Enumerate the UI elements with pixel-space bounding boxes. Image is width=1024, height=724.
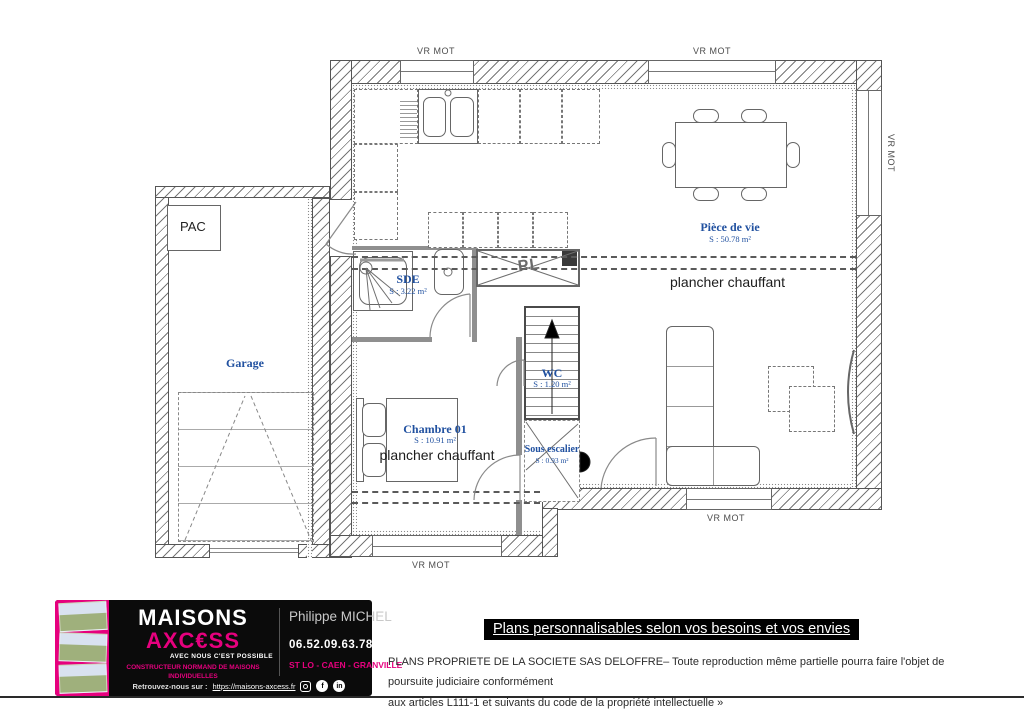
room-area-bedroom: S : 10.91 m²: [380, 435, 490, 445]
pac-label: PAC: [180, 219, 206, 234]
social-prefix: Retrouvez-nous sur :: [133, 682, 208, 691]
partition-bedroom-right-lower: [516, 500, 522, 535]
chair: [662, 142, 676, 168]
room-area-understairs: S : 0.93 m²: [516, 456, 588, 465]
photo-strip: [55, 600, 109, 696]
shutter-label-kitchen: VR MOT: [417, 46, 455, 56]
garage-wall-right: [312, 198, 330, 558]
closet-label: PL: [517, 256, 542, 277]
kitchen-counter-cell: [354, 144, 398, 192]
floor-plan-page: VR MOT VR MOT VR MOT VR MOT VR MOT: [0, 0, 1024, 724]
garage-wall-top: [155, 186, 330, 198]
window-living-top: [648, 60, 776, 84]
closet-dark-box: [562, 251, 577, 266]
sink-basin-right: [450, 97, 474, 137]
legal-line-1: PLANS PROPRIETE DE LA SOCIETE SAS DELOFF…: [388, 652, 966, 693]
garage-wall-bottom-left: [155, 544, 210, 558]
garage-door-travel-zone: [178, 392, 314, 542]
wall-left-lower: [330, 256, 352, 558]
room-label-living: Pièce de vie: [650, 220, 810, 235]
chair: [693, 109, 719, 123]
chair: [786, 142, 800, 168]
facebook-icon: f: [316, 680, 328, 692]
heating-zone-line: [352, 256, 856, 258]
brand-name-line2: AXC€SS: [113, 630, 273, 652]
brand-card: MAISONS AXC€SS AVEC NOUS C'EST POSSIBLE …: [55, 600, 372, 696]
dining-table: [675, 122, 787, 188]
customizable-plans-banner: Plans personnalisables selon vos besoins…: [484, 619, 859, 640]
heating-zone-line: [352, 502, 540, 504]
kitchen-island-cell: [428, 212, 463, 248]
kitchen-drainer: [400, 98, 417, 138]
window-living-bottom: [686, 488, 772, 510]
room-label-sde: SDE: [378, 272, 438, 287]
chair: [741, 109, 767, 123]
brand-logo: MAISONS AXC€SS AVEC NOUS C'EST POSSIBLE …: [113, 607, 273, 681]
wall-left-upper: [330, 60, 352, 200]
house-photo: [58, 601, 107, 632]
partition-sde-bottom: [352, 337, 432, 342]
contact-block: Philippe MICHEL 06.52.09.63.78 ST LO - C…: [289, 609, 369, 670]
shutter-label-living-top: VR MOT: [693, 46, 731, 56]
kitchen-counter-cell: [520, 89, 562, 144]
contact-phone: 06.52.09.63.78: [289, 639, 369, 651]
window-bedroom: [372, 535, 502, 557]
room-area-sde: S : 3.22 m²: [378, 286, 438, 296]
legal-notice: PLANS PROPRIETE DE LA SOCIETE SAS DELOFF…: [388, 652, 966, 713]
shutter-label-living-bottom: VR MOT: [707, 513, 745, 523]
partition-bedroom-right-upper: [516, 337, 522, 455]
room-label-garage: Garage: [195, 356, 295, 371]
house-photo: [59, 632, 108, 663]
heating-label-bedroom: plancher chauffant: [372, 447, 502, 463]
house-photo: [59, 663, 108, 694]
garage-door-sill: [210, 548, 298, 553]
contact-name: Philippe MICHEL: [289, 609, 369, 624]
sink-basin-left: [423, 97, 446, 137]
website-link[interactable]: https://maisons-axcess.fr: [213, 682, 296, 691]
linkedin-icon: in: [333, 680, 345, 692]
room-label-understairs: Sous escalier: [516, 444, 588, 455]
sofa-corner-section: [666, 446, 760, 486]
brand-tagline: AVEC NOUS C'EST POSSIBLE: [113, 653, 273, 660]
room-area-wc: S : 1.20 m²: [522, 379, 582, 389]
staircase: [524, 306, 580, 420]
room-area-living: S : 50.78 m²: [650, 234, 810, 244]
window-kitchen: [400, 60, 474, 84]
kitchen-counter-cell: [354, 192, 398, 240]
brand-name-line1: MAISONS: [113, 607, 273, 629]
shutter-label-living-right: VR MOT: [886, 134, 896, 172]
card-divider: [279, 608, 280, 676]
coffee-table: [789, 386, 835, 432]
heating-zone-line: [352, 491, 540, 493]
kitchen-island-cell: [498, 212, 533, 248]
sde-door-arc: [430, 294, 470, 337]
bottom-rule: [0, 696, 1024, 698]
kitchen-counter-cell: [478, 89, 520, 144]
kitchen-island-cell: [533, 212, 568, 248]
kitchen-counter-cell: [562, 89, 600, 144]
heating-label-living: plancher chauffant: [640, 274, 815, 290]
instagram-icon: [300, 681, 311, 692]
living-door-arc: [601, 438, 656, 488]
heating-zone-line: [352, 268, 856, 270]
kitchen-island-cell: [463, 212, 498, 248]
chair: [741, 187, 767, 201]
chair: [693, 187, 719, 201]
shutter-label-bedroom: VR MOT: [412, 560, 450, 570]
window-living-right: [856, 90, 882, 216]
garage-wall-bottom-right: [298, 544, 330, 558]
social-row: Retrouvez-nous sur : https://maisons-axc…: [111, 680, 367, 692]
wall-step: [542, 508, 558, 557]
contact-cities: ST LO - CAEN - GRANVILLE: [289, 660, 369, 670]
brand-subtitle: CONSTRUCTEUR NORMAND DE MAISONS INDIVIDU…: [113, 663, 273, 681]
